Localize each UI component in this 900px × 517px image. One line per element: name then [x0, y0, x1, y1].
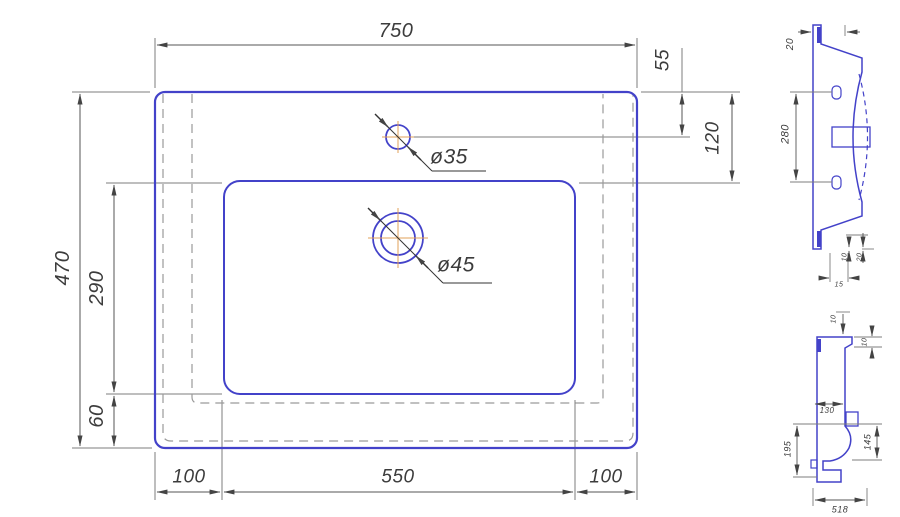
dim-left-margin-label: 100 — [172, 468, 205, 487]
sink-outlines — [155, 92, 637, 448]
front-section-ext-lines — [793, 312, 882, 506]
centerlines — [368, 121, 428, 268]
dim-bottom-margin-label: 60 — [87, 404, 107, 427]
front-section-view — [793, 312, 882, 506]
dim-basin-height-label: 290 — [87, 271, 107, 306]
front-dim-back-height-label: 195 — [784, 441, 793, 458]
dim-drain-hole-dia-label: ø45 — [437, 255, 475, 276]
side-section-view — [790, 25, 874, 282]
dim-width-label: 750 — [379, 21, 414, 41]
side-mount-slot-bottom — [832, 176, 841, 189]
front-dim-flange-label: 10 — [862, 338, 869, 347]
side-dim-edge-small-label: 10 — [842, 253, 849, 262]
side-section-cut-fill — [817, 27, 821, 247]
dim-tap-offset-label: 55 — [654, 49, 673, 71]
front-dim-rim-label: 10 — [831, 315, 838, 324]
side-section-outline — [813, 25, 870, 249]
side-dim-hole-spacing-label: 280 — [781, 124, 792, 144]
dim-deck-depth-label: 120 — [704, 121, 723, 154]
side-dim-flange-label: 20 — [786, 38, 796, 50]
side-overflow-box — [832, 127, 870, 147]
side-mount-slot-top — [832, 86, 841, 99]
front-section-cut-fill — [817, 339, 821, 352]
side-dim-lip-label: 15 — [835, 282, 844, 289]
dim-height-label: 470 — [53, 251, 73, 286]
front-foot-lug — [811, 460, 817, 468]
dimension-lines — [80, 45, 732, 492]
dim-basin-width-label: 550 — [381, 468, 414, 487]
front-dim-front-height-label: 145 — [864, 434, 873, 451]
side-dim-edge-large-label: 20 — [857, 253, 864, 262]
dim-right-margin-label: 100 — [589, 468, 622, 487]
plan-view — [72, 38, 740, 500]
dim-tap-hole-dia-label: ø35 — [430, 147, 468, 168]
extension-lines — [72, 38, 740, 500]
side-section-hidden-bowl — [859, 74, 868, 200]
front-dim-length-label: 518 — [832, 506, 849, 515]
technical-drawing-canvas: 750 470 290 60 55 120 100 550 100 ø35 ø4… — [0, 0, 900, 517]
front-dim-wall-label: 130 — [820, 407, 835, 415]
